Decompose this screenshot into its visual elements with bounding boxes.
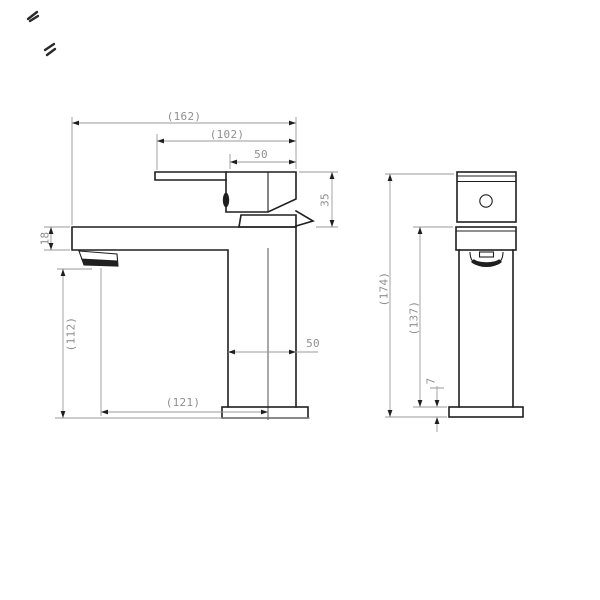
technical-drawing-canvas: (162) (102) 50 35 18 (112) 50 bbox=[0, 0, 600, 600]
handle-cap-lines bbox=[457, 176, 516, 182]
dimension-label-18: 18 bbox=[39, 232, 52, 246]
arrowhead bbox=[61, 411, 66, 418]
handle-lever bbox=[155, 172, 226, 180]
arrowhead bbox=[388, 410, 393, 417]
dimension-7: 7 bbox=[425, 378, 445, 432]
dimension-line bbox=[430, 386, 444, 432]
arrowhead bbox=[289, 139, 296, 144]
side-view bbox=[72, 172, 313, 420]
dimension-121: (121) bbox=[101, 268, 268, 416]
base-plate-front bbox=[449, 407, 523, 417]
faucet-technical-drawing: (162) (102) 50 35 18 (112) 50 bbox=[0, 0, 600, 600]
arrowhead bbox=[289, 160, 296, 165]
cartridge-screw-circle bbox=[480, 195, 492, 207]
arrowhead bbox=[61, 269, 66, 276]
dimension-label-7: 7 bbox=[425, 378, 438, 385]
dimension-label-112: (112) bbox=[65, 317, 78, 352]
arrowhead bbox=[289, 350, 296, 355]
front-view bbox=[449, 172, 523, 417]
collar bbox=[239, 215, 296, 227]
dimension-label-50-body: 50 bbox=[306, 337, 320, 350]
arrowhead bbox=[72, 121, 79, 126]
arrowhead bbox=[388, 174, 393, 181]
arrowhead bbox=[418, 400, 423, 407]
arrowhead bbox=[418, 227, 423, 234]
dimension-label-121: (121) bbox=[166, 396, 201, 409]
dimension-label-174: (174) bbox=[378, 272, 391, 307]
artifact-mark bbox=[28, 12, 38, 21]
dimension-162: (162) bbox=[72, 110, 296, 225]
dimension-35: 35 bbox=[299, 172, 338, 227]
handle-body bbox=[226, 172, 296, 212]
aerator-front-notch bbox=[480, 252, 494, 257]
dimension-line bbox=[101, 268, 268, 416]
dimension-label-102: (102) bbox=[210, 128, 245, 141]
arrowhead bbox=[330, 220, 335, 227]
arrowhead bbox=[230, 160, 237, 165]
dimension-line bbox=[385, 174, 454, 417]
dimension-label-50-top: 50 bbox=[254, 148, 268, 161]
dimension-label-35: 35 bbox=[319, 193, 332, 207]
scan-artifact-marks bbox=[28, 12, 55, 55]
dimension-50-body: 50 bbox=[228, 337, 320, 354]
arrowhead bbox=[435, 400, 440, 407]
dimension-50-top: 50 bbox=[230, 148, 296, 169]
aerator-front-band bbox=[473, 261, 501, 265]
arrowhead bbox=[330, 172, 335, 179]
aerator-outlet-band bbox=[81, 259, 118, 267]
dimension-18: 18 bbox=[39, 227, 71, 250]
artifact-mark bbox=[45, 44, 55, 55]
handle-block-front bbox=[457, 172, 516, 222]
body-column-front bbox=[459, 250, 513, 407]
arrowhead bbox=[228, 350, 235, 355]
arrowhead bbox=[289, 121, 296, 126]
lever-pivot-dot bbox=[223, 193, 229, 207]
dimension-102: (102) bbox=[157, 128, 296, 170]
dimension-line bbox=[72, 117, 296, 225]
dimension-174: (174) bbox=[378, 174, 455, 417]
arrowhead bbox=[101, 410, 108, 415]
arrowhead bbox=[157, 139, 164, 144]
spout-and-column-outline bbox=[72, 227, 296, 407]
arrowhead bbox=[435, 417, 440, 424]
collar-rear-chamfer bbox=[296, 211, 313, 226]
dimension-label-137: (137) bbox=[408, 301, 421, 336]
arrowhead bbox=[261, 410, 268, 415]
dimension-label-162: (162) bbox=[167, 110, 202, 123]
